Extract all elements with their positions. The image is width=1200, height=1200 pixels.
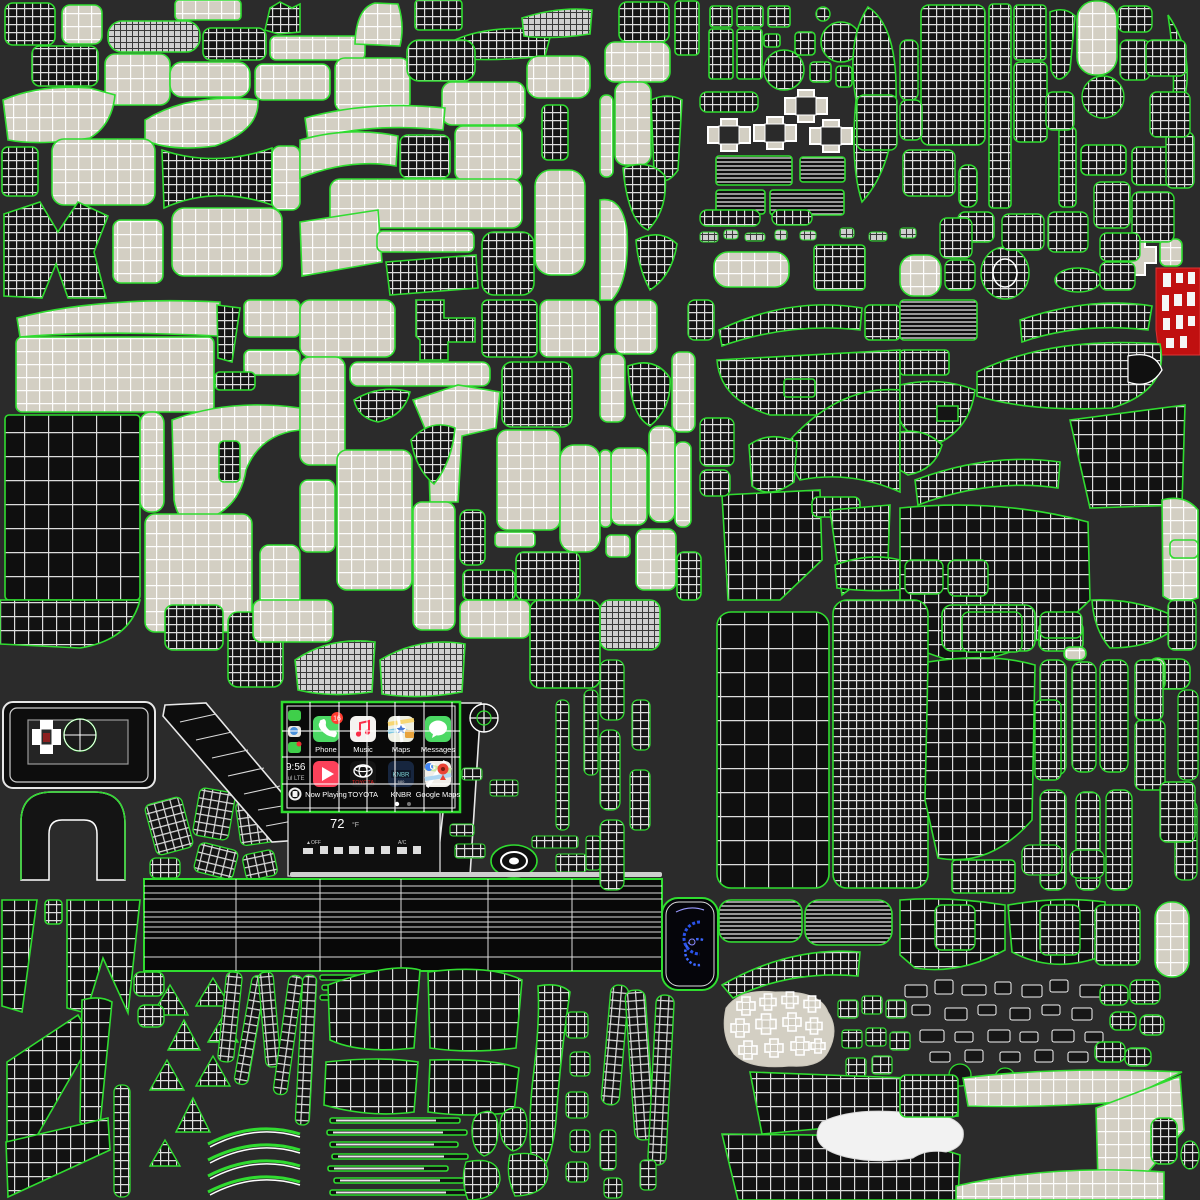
svg-text:.ul LTE: .ul LTE — [286, 776, 305, 782]
svg-text:Music: Music — [353, 745, 373, 754]
svg-text:72: 72 — [330, 816, 344, 831]
svg-text:▲OFF: ▲OFF — [306, 840, 321, 846]
svg-text:16: 16 — [333, 716, 341, 723]
svg-text:Now Playing: Now Playing — [305, 790, 347, 799]
svg-text:TOYOTA: TOYOTA — [348, 790, 378, 799]
svg-text:G: G — [430, 763, 436, 772]
svg-text:Messages: Messages — [421, 745, 455, 754]
svg-text:KNBR: KNBR — [391, 790, 412, 799]
svg-text:680: 680 — [398, 779, 405, 784]
svg-text:Phone: Phone — [315, 745, 337, 754]
svg-text:TOYOTA: TOYOTA — [352, 780, 374, 786]
svg-text:°F: °F — [352, 821, 359, 829]
svg-text:9:56: 9:56 — [286, 762, 306, 773]
svg-text:A/C: A/C — [398, 840, 407, 846]
svg-text:Google Maps: Google Maps — [416, 790, 461, 799]
